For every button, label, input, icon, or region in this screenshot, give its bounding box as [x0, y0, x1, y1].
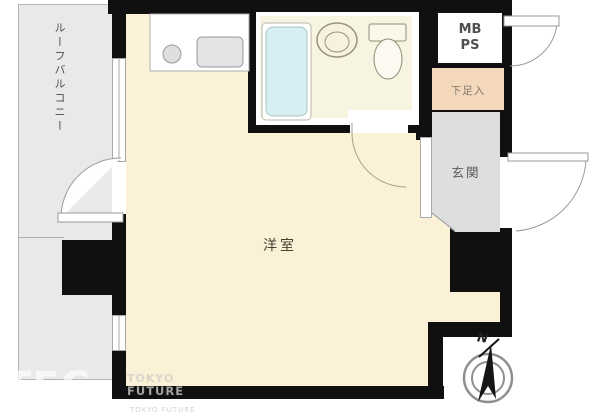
room-label: 洋室: [248, 235, 312, 255]
room-area: [126, 14, 250, 386]
balcony-divider-line: [18, 237, 64, 238]
entrance-door-swing: [508, 153, 588, 231]
room-area: [450, 292, 503, 322]
room-area: [420, 210, 452, 322]
meter-pipe-box: MB PS: [438, 13, 502, 63]
watermark-logo: TEC: [4, 364, 91, 410]
bathroom-door-gap: [350, 123, 408, 133]
entrance-label: 玄関: [436, 162, 496, 181]
balcony-label: ルーフバルコニー: [51, 22, 67, 182]
meter-box-label: MB: [459, 22, 482, 38]
balcony-window: [112, 58, 126, 162]
wall-block-below-entrance: [450, 228, 503, 292]
wall-bottom-right-vertical: [428, 337, 443, 399]
bathroom-floor: [260, 16, 412, 118]
compass-icon: [464, 339, 512, 402]
compass-north-label: N: [476, 330, 489, 346]
meter-box-door-swing: [504, 16, 559, 66]
watermark-small: TOKYO FUTURE: [130, 406, 196, 414]
wall-bottom-right-horizontal: [428, 322, 512, 337]
watermark-line2: FUTURE: [127, 384, 184, 398]
balcony-door-opening: [112, 162, 126, 214]
room-area: [420, 322, 428, 386]
wall-balcony-block: [62, 240, 125, 295]
floor-plan: MB PS: [0, 0, 600, 419]
room-entrance-partition: [420, 137, 432, 218]
entrance-door-opening: [500, 157, 512, 228]
room-area: [250, 133, 420, 386]
wall-left: [112, 0, 126, 60]
shoe-cabinet-label: 下足入: [432, 83, 504, 98]
pipe-shaft-label: PS: [461, 38, 480, 54]
balcony-window: [112, 315, 126, 351]
